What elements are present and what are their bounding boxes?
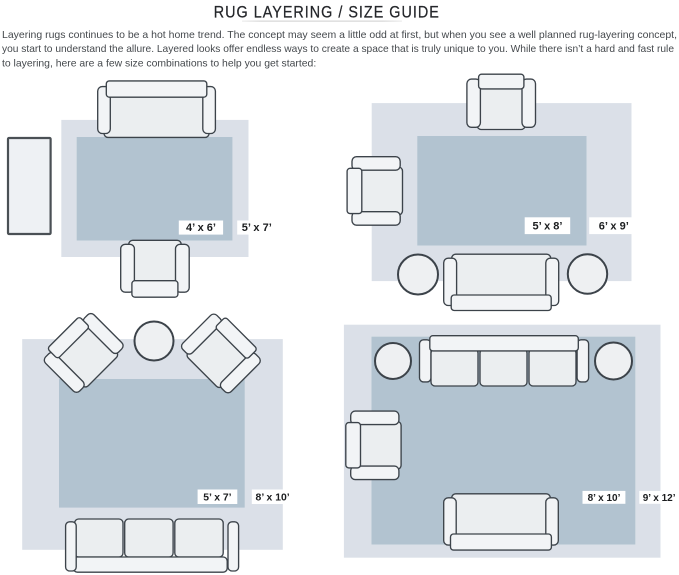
svg-text:5’ x 8’: 5’ x 8’	[533, 220, 563, 232]
svg-text:you start to understand the al: you start to understand the allure. Laye…	[2, 44, 674, 55]
svg-text:Layering rugs continues to be: Layering rugs continues to be a hot home…	[2, 30, 677, 41]
svg-text:to layering, here are a few si: to layering, here are a few size combina…	[2, 58, 316, 69]
svg-text:5’ x 7’: 5’ x 7’	[242, 222, 272, 234]
svg-text:5’ x 7’: 5’ x 7’	[203, 492, 231, 503]
svg-text:6’ x 9’: 6’ x 9’	[599, 220, 629, 232]
svg-text:RUG LAYERING / SIZE GUIDE: RUG LAYERING / SIZE GUIDE	[214, 2, 440, 21]
svg-text:8’ x 10’: 8’ x 10’	[256, 492, 290, 503]
svg-text:4’ x 6’: 4’ x 6’	[186, 222, 216, 234]
svg-text:9’ x 12’: 9’ x 12’	[643, 493, 676, 504]
svg-text:8’ x 10’: 8’ x 10’	[588, 493, 621, 504]
